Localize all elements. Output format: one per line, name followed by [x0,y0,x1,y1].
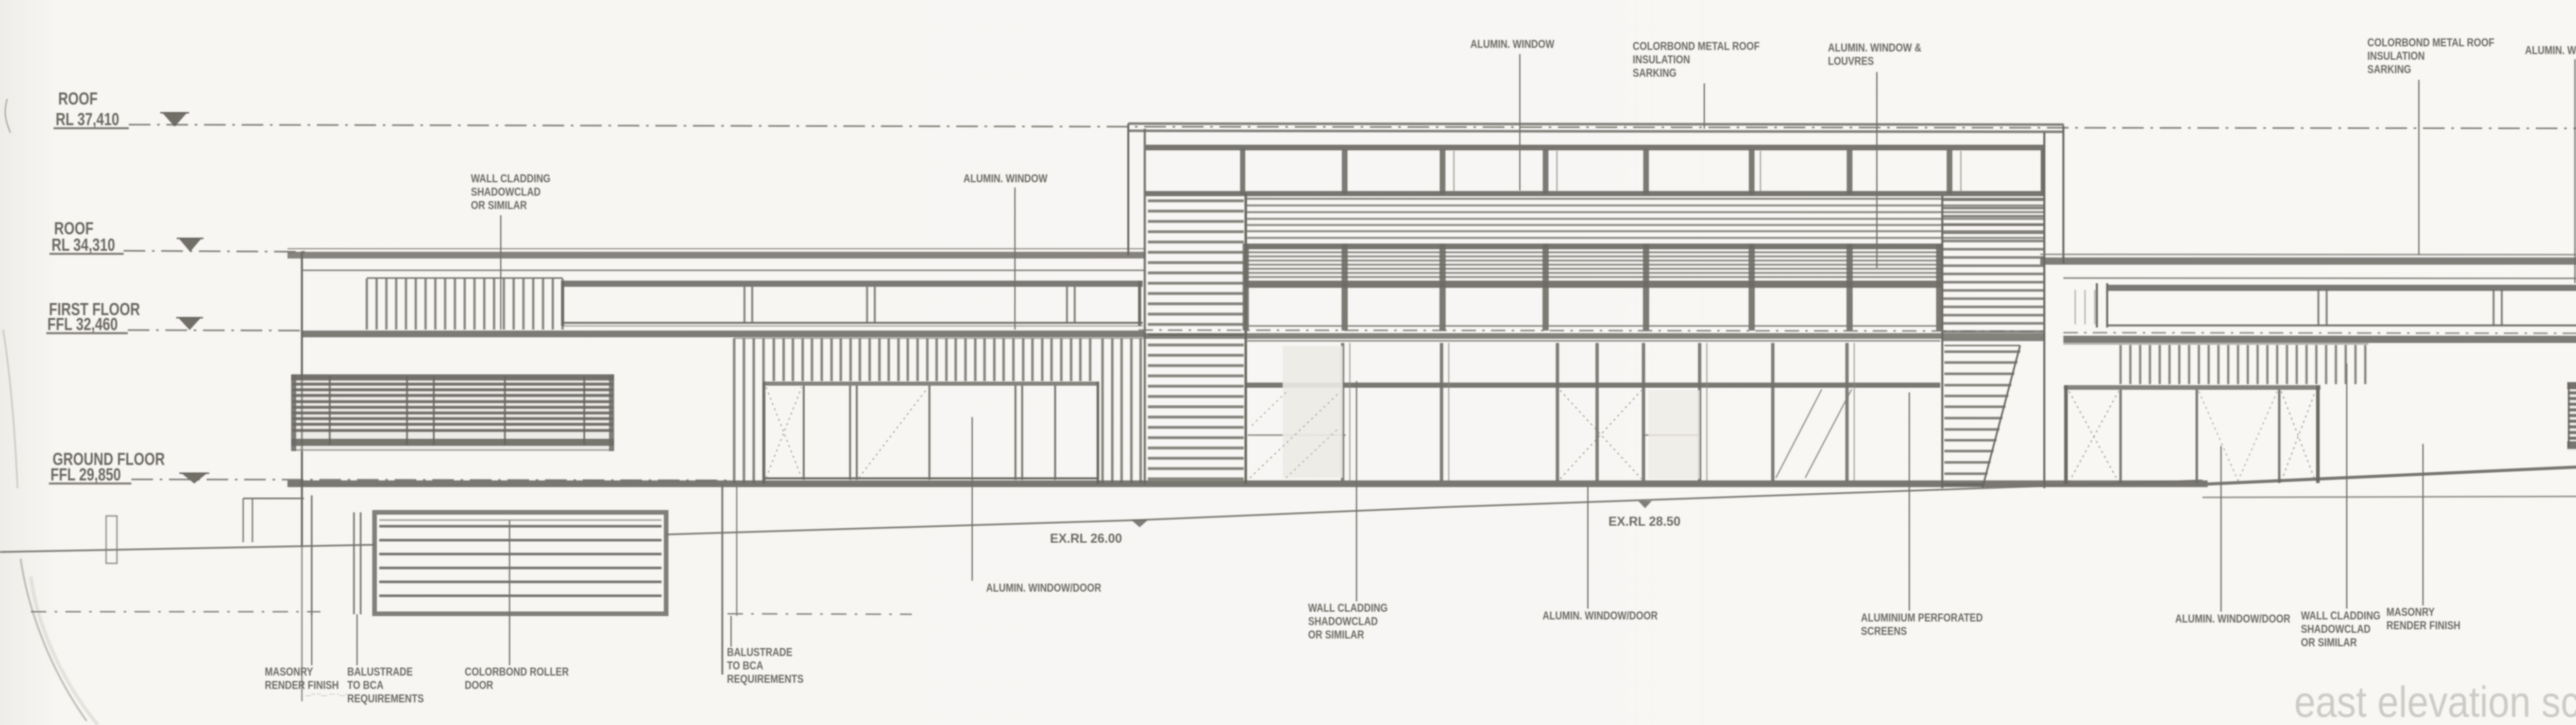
svg-text:ALUMIN. WINDOW/DOOR: ALUMIN. WINDOW/DOOR [1543,610,1658,623]
svg-text:ALUMIN. WINDOW: ALUMIN. WINDOW [1470,39,1555,51]
svg-text:east elevation scale 1:100: east elevation scale 1:100 [2294,678,2576,725]
svg-text:ALUMIN. WINDOW/DOOR: ALUMIN. WINDOW/DOOR [2175,613,2291,626]
svg-text:RL 37,410: RL 37,410 [56,110,119,129]
svg-text:ROOF: ROOF [58,89,98,109]
svg-text:ALUMIN. WINDOW/DOOR: ALUMIN. WINDOW/DOOR [986,582,1101,595]
svg-text:EX.RL 26.00: EX.RL 26.00 [1050,532,1122,546]
svg-text:ALUMIN. WINDOW: ALUMIN. WINDOW [2525,45,2576,57]
svg-text:EX.RL 28.50: EX.RL 28.50 [1608,515,1681,529]
svg-text:FFL 32,460: FFL 32,460 [47,315,118,334]
svg-text:ALUMIN. WINDOW: ALUMIN. WINDOW [963,173,1048,185]
svg-text:RL 34,310: RL 34,310 [52,235,115,255]
svg-text:FFL 29,850: FFL 29,850 [50,465,121,485]
